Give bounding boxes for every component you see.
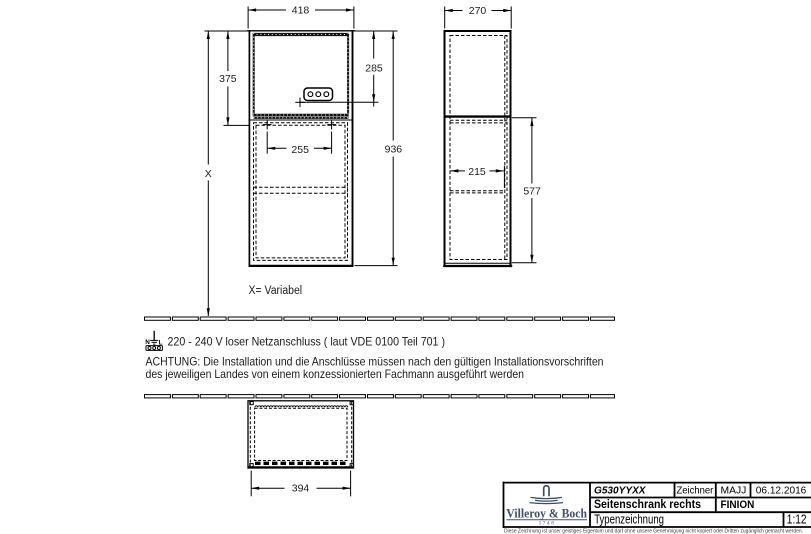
- svg-text:936: 936: [385, 143, 403, 155]
- svg-text:X= Variabel: X= Variabel: [249, 285, 303, 297]
- svg-text:1748: 1748: [539, 521, 556, 527]
- svg-text:des jeweiligen Landes von eine: des jeweiligen Landes von einem konzessi…: [146, 367, 525, 381]
- svg-text:MAJJ: MAJJ: [721, 484, 747, 496]
- svg-text:Zeichner: Zeichner: [677, 484, 714, 496]
- svg-text:255: 255: [291, 144, 309, 156]
- svg-text:375: 375: [219, 73, 237, 85]
- svg-text:Seitenschrank rechts: Seitenschrank rechts: [594, 499, 701, 511]
- svg-text:215: 215: [468, 166, 486, 178]
- svg-text:Diese Zeichnung ist unser geis: Diese Zeichnung ist unser geistiges Eige…: [504, 528, 803, 534]
- svg-text:220 - 240 V loser Netzanschlus: 220 - 240 V loser Netzanschluss ( laut V…: [168, 335, 446, 349]
- svg-text:N: N: [145, 339, 150, 346]
- svg-text:Villeroy & Boch: Villeroy & Boch: [506, 505, 587, 520]
- svg-text:418: 418: [292, 5, 310, 17]
- svg-text:FINION: FINION: [721, 499, 755, 511]
- svg-text:06.12.2016: 06.12.2016: [756, 484, 807, 496]
- svg-text:X: X: [205, 168, 212, 180]
- svg-text:285: 285: [365, 62, 383, 74]
- svg-text:G530YYXX: G530YYXX: [594, 484, 646, 496]
- svg-text:1:12: 1:12: [787, 512, 807, 526]
- svg-text:Typenzeichnung: Typenzeichnung: [594, 513, 664, 527]
- svg-text:394: 394: [292, 483, 310, 495]
- svg-text:270: 270: [469, 5, 487, 17]
- svg-text:577: 577: [523, 186, 541, 198]
